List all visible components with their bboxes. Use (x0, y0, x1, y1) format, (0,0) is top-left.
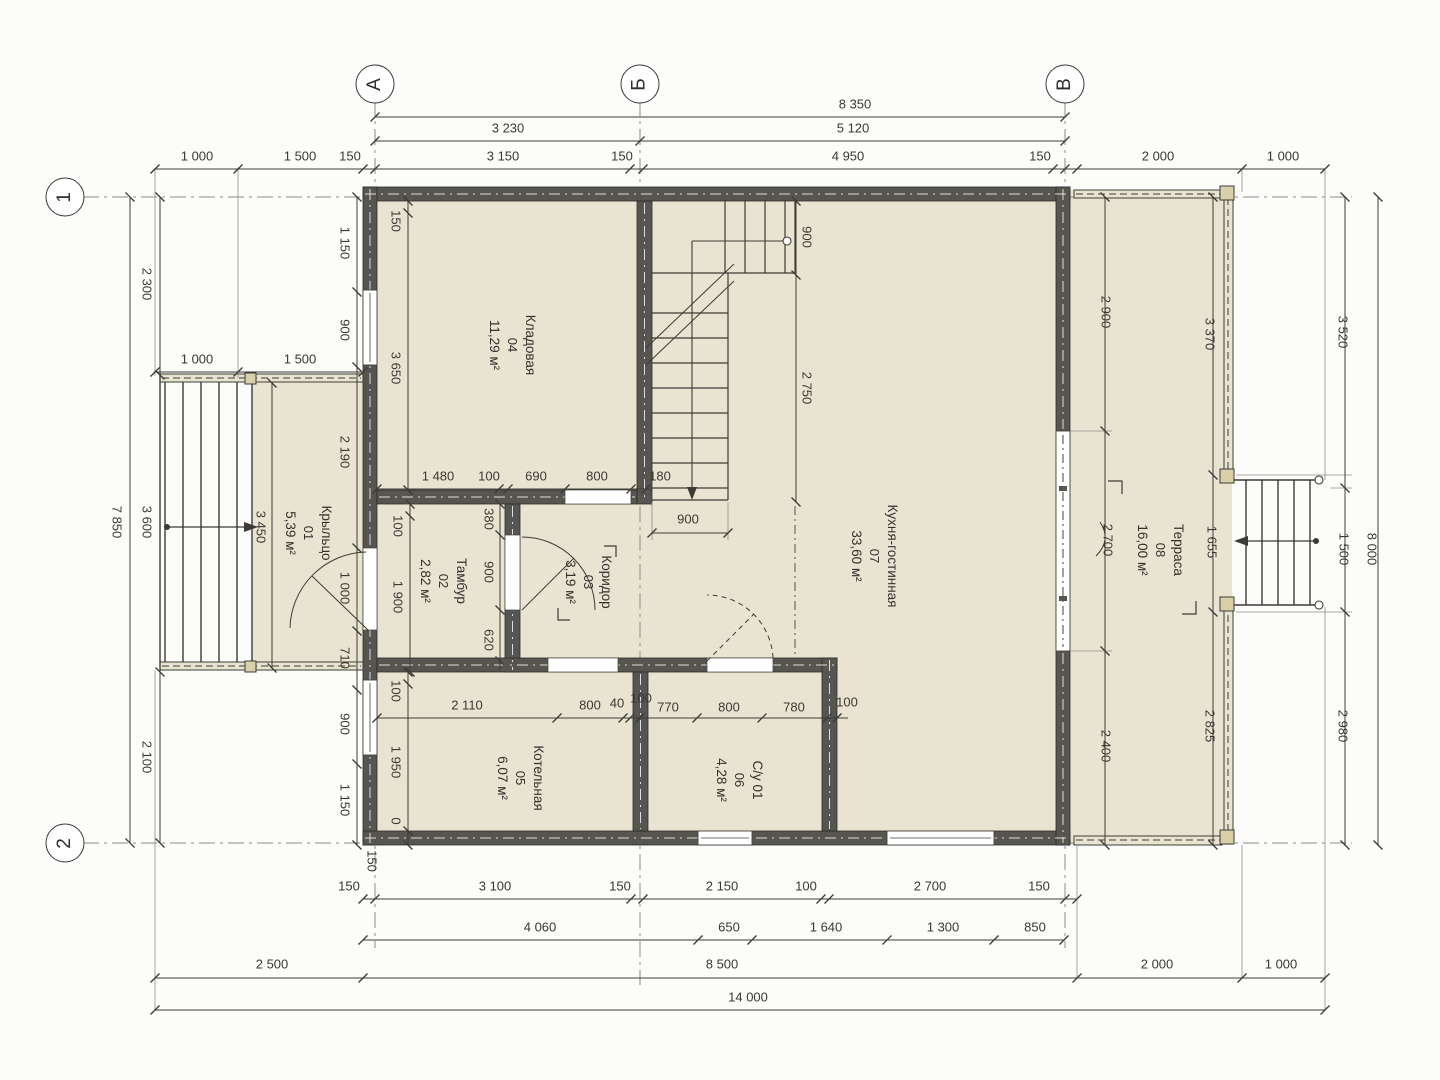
dim-label: 1 950 (390, 746, 403, 779)
dim-label: 100 (392, 515, 405, 537)
dim-label: 770 (657, 701, 679, 714)
room-number: 02 (434, 558, 452, 604)
room-name: Кладовая (521, 315, 539, 375)
dim-label: 8 000 (1366, 533, 1379, 566)
dim-label: 0 (390, 817, 403, 824)
room-number: 05 (511, 745, 529, 810)
dim-label: 3 100 (479, 880, 512, 893)
dim-label: 150 (366, 850, 379, 872)
dim-label: 2 100 (141, 741, 154, 774)
dim-label: 2 300 (141, 268, 154, 301)
dim-label: 900 (339, 319, 352, 341)
room-label: Кухня-гостинная0733,60 м² (847, 505, 901, 608)
dim-label: 2 000 (1142, 150, 1175, 163)
room-label: Крыльцо015,39 м² (281, 505, 335, 560)
room-name: Кухня-гостинная (883, 505, 901, 608)
dim-label: 1 480 (422, 470, 455, 483)
dim-label: 150 (609, 880, 631, 893)
axis-marker: 2 (46, 824, 85, 863)
room-name: С/у 01 (748, 758, 766, 802)
dim-label: 650 (718, 921, 740, 934)
dim-label: 1 000 (181, 353, 214, 366)
room-number: 03 (579, 555, 597, 608)
dim-label: 2 700 (1102, 524, 1115, 557)
room-number: 08 (1151, 524, 1169, 576)
dim-label: 710 (339, 647, 352, 669)
dim-label: 3 150 (487, 150, 520, 163)
dim-label: 1 640 (810, 921, 843, 934)
dim-label: 100 (630, 692, 652, 705)
dim-label: 3 370 (1204, 318, 1217, 351)
room-number: 07 (865, 505, 883, 608)
dim-label: 100 (478, 470, 500, 483)
dim-label: 40 (610, 697, 624, 710)
dim-label: 800 (718, 701, 740, 714)
dim-label: 3 230 (492, 122, 525, 135)
room-area: 4,28 м² (712, 758, 730, 802)
dim-label: 100 (795, 880, 817, 893)
axis-marker: 1 (46, 178, 85, 217)
axis-marker-label: В (1054, 78, 1076, 91)
room-area: 6,07 м² (493, 745, 511, 810)
dim-label: 780 (783, 701, 805, 714)
dim-label: 1 500 (284, 353, 317, 366)
room-area: 5,39 м² (281, 505, 299, 560)
dim-label: 3 600 (141, 506, 154, 539)
dim-label: 620 (483, 629, 496, 651)
axis-marker-label: 2 (54, 838, 76, 849)
dim-label: 380 (483, 508, 496, 530)
dim-label: 8 350 (839, 98, 872, 111)
dim-label: 2 000 (1141, 958, 1174, 971)
dim-label: 1 655 (1206, 526, 1219, 559)
room-area: 2,82 м² (416, 558, 434, 604)
room-label: С/у 01064,28 м² (712, 758, 766, 802)
room-area: 3,19 м² (561, 555, 579, 608)
dim-label: 2 150 (706, 880, 739, 893)
dim-label: 2 700 (914, 880, 947, 893)
axis-marker: А (356, 65, 395, 104)
dim-label: 4 950 (832, 150, 865, 163)
dim-label: 180 (649, 470, 671, 483)
room-area: 16,00 м² (1133, 524, 1151, 576)
dim-label: 3 450 (255, 511, 268, 544)
dim-label: 2 500 (256, 958, 289, 971)
dim-label: 1 000 (1267, 150, 1300, 163)
labels-layer: 8 3503 2305 1201 0001 5001503 1501504 95… (0, 0, 1440, 1080)
dim-label: 1 000 (181, 150, 214, 163)
dim-label: 900 (339, 713, 352, 735)
room-number: 04 (503, 315, 521, 375)
room-name: Крыльцо (317, 505, 335, 560)
dim-label: 150 (611, 150, 633, 163)
axis-marker-label: 1 (54, 192, 76, 203)
dim-label: 800 (586, 470, 608, 483)
dim-label: 900 (801, 226, 814, 248)
dim-label: 150 (1029, 150, 1051, 163)
room-label: Терраса0816,00 м² (1133, 524, 1187, 576)
dim-label: 2 980 (1337, 710, 1350, 743)
floor-plan-page: 8 3503 2305 1201 0001 5001503 1501504 95… (0, 0, 1440, 1080)
dim-label: 100 (836, 696, 858, 709)
dim-label: 1 300 (927, 921, 960, 934)
dim-label: 690 (525, 470, 547, 483)
dim-label: 14 000 (728, 991, 768, 1004)
dim-label: 150 (339, 150, 361, 163)
dim-label: 4 060 (524, 921, 557, 934)
room-name: Котельная (529, 745, 547, 810)
dim-label: 1 900 (392, 581, 405, 614)
room-area: 33,60 м² (847, 505, 865, 608)
room-name: Терраса (1169, 524, 1187, 576)
dim-label: 1 000 (339, 572, 352, 605)
axis-marker-label: Б (629, 78, 651, 90)
dim-label: 150 (390, 210, 403, 232)
dim-label: 1 500 (284, 150, 317, 163)
dim-label: 2 400 (1100, 730, 1113, 763)
dim-label: 150 (1028, 880, 1050, 893)
dim-label: 2 190 (339, 436, 352, 469)
dim-label: 2 825 (1204, 710, 1217, 743)
room-number: 06 (730, 758, 748, 802)
room-label: Тамбур022,82 м² (416, 558, 470, 604)
dim-label: 900 (677, 513, 699, 526)
dim-label: 100 (390, 680, 403, 702)
dim-label: 3 650 (390, 352, 403, 385)
dim-label: 900 (483, 561, 496, 583)
room-name: Тамбур (452, 558, 470, 604)
room-number: 01 (299, 505, 317, 560)
room-label: Кладовая0411,29 м² (485, 315, 539, 375)
dim-label: 850 (1024, 921, 1046, 934)
dim-label: 8 500 (706, 958, 739, 971)
dim-label: 2 110 (451, 699, 483, 712)
dim-label: 2 900 (1100, 296, 1113, 329)
dim-label: 150 (338, 880, 360, 893)
axis-marker-label: А (364, 78, 386, 91)
dim-label: 1 150 (339, 227, 352, 260)
dim-label: 7 850 (111, 506, 124, 539)
room-area: 11,29 м² (485, 315, 503, 375)
dim-label: 5 120 (837, 122, 870, 135)
room-label: Котельная056,07 м² (493, 745, 547, 810)
dim-label: 1 150 (339, 784, 352, 817)
dim-label: 3 520 (1337, 316, 1350, 349)
dim-label: 1 000 (1265, 958, 1298, 971)
room-name: Коридор (597, 555, 615, 608)
dim-label: 1 500 (1338, 533, 1351, 566)
dim-label: 800 (579, 699, 601, 712)
dim-label: 2 750 (801, 372, 814, 405)
room-label: Коридор033,19 м² (561, 555, 615, 608)
axis-marker: В (1046, 65, 1085, 104)
axis-marker: Б (621, 65, 660, 104)
